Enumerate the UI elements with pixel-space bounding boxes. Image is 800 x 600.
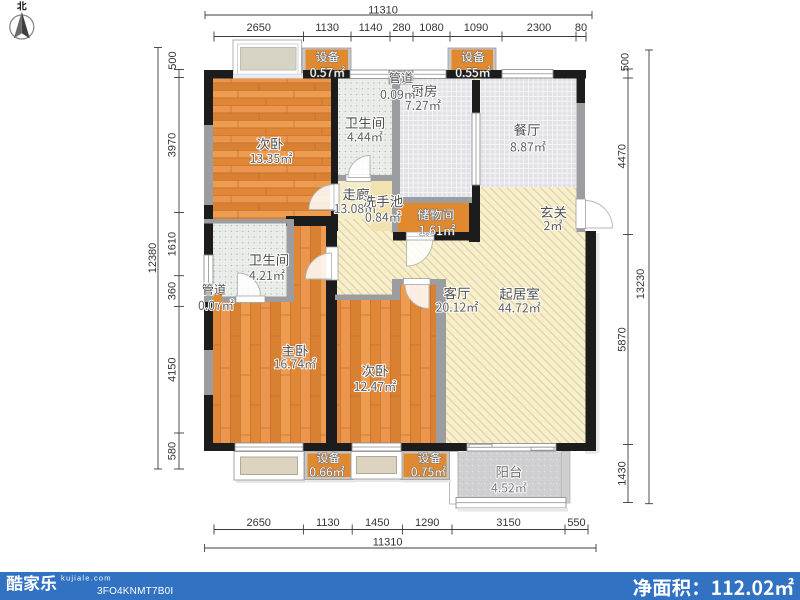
- svg-text:500: 500: [620, 53, 632, 71]
- svg-text:2300: 2300: [527, 22, 551, 34]
- svg-text:580: 580: [167, 442, 179, 460]
- svg-text:1290: 1290: [415, 517, 439, 529]
- svg-text:1450: 1450: [365, 517, 389, 529]
- svg-text:80: 80: [575, 22, 587, 34]
- svg-text:1130: 1130: [315, 22, 339, 34]
- svg-text:4150: 4150: [167, 357, 179, 381]
- svg-text:1130: 1130: [316, 517, 340, 529]
- svg-text:11310: 11310: [373, 537, 403, 549]
- svg-text:4470: 4470: [617, 144, 629, 168]
- svg-text:kujiale.com: kujiale.com: [61, 574, 112, 583]
- svg-text:12380: 12380: [147, 243, 159, 274]
- svg-text:3970: 3970: [167, 133, 179, 157]
- svg-text:3150: 3150: [496, 517, 520, 529]
- svg-text:1090: 1090: [464, 22, 488, 34]
- svg-text:3FO4KNMT7B0I: 3FO4KNMT7B0I: [97, 586, 173, 597]
- svg-text:13230: 13230: [635, 269, 647, 300]
- svg-text:2650: 2650: [247, 22, 271, 34]
- svg-text:1140: 1140: [359, 22, 383, 34]
- svg-text:1430: 1430: [617, 461, 629, 485]
- svg-text:5870: 5870: [617, 327, 629, 351]
- svg-text:500: 500: [167, 51, 179, 69]
- svg-text:2650: 2650: [246, 517, 270, 529]
- svg-text:280: 280: [392, 22, 410, 34]
- svg-text:1610: 1610: [167, 232, 179, 256]
- svg-text:550: 550: [567, 517, 585, 529]
- svg-text:1080: 1080: [419, 22, 443, 34]
- svg-text:11310: 11310: [368, 5, 398, 17]
- svg-text:360: 360: [167, 282, 179, 300]
